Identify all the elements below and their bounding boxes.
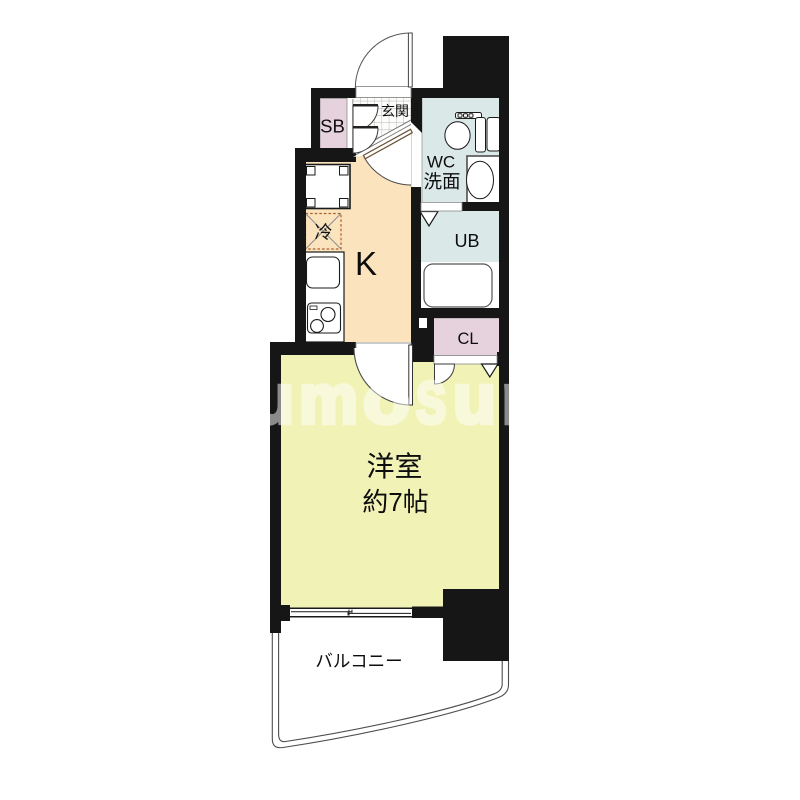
svg-text:K: K	[355, 245, 377, 282]
svg-text:m: m	[299, 360, 358, 438]
svg-text:洋室: 洋室	[366, 451, 422, 482]
svg-text:S: S	[416, 371, 446, 436]
svg-text:WC: WC	[427, 153, 455, 172]
svg-text:u: u	[453, 360, 496, 438]
svg-text:o: o	[363, 360, 410, 438]
svg-text:m: m	[502, 360, 561, 438]
svg-text:CL: CL	[457, 330, 478, 348]
svg-text:約7帖: 約7帖	[362, 487, 428, 517]
svg-text:UB: UB	[454, 231, 479, 251]
svg-text:バルコニー: バルコニー	[315, 651, 402, 671]
svg-text:冷: 冷	[315, 223, 333, 243]
svg-text:玄関: 玄関	[381, 103, 409, 119]
svg-text:u: u	[252, 360, 294, 438]
svg-text:SB: SB	[320, 116, 345, 137]
svg-text:洗面: 洗面	[423, 171, 460, 192]
